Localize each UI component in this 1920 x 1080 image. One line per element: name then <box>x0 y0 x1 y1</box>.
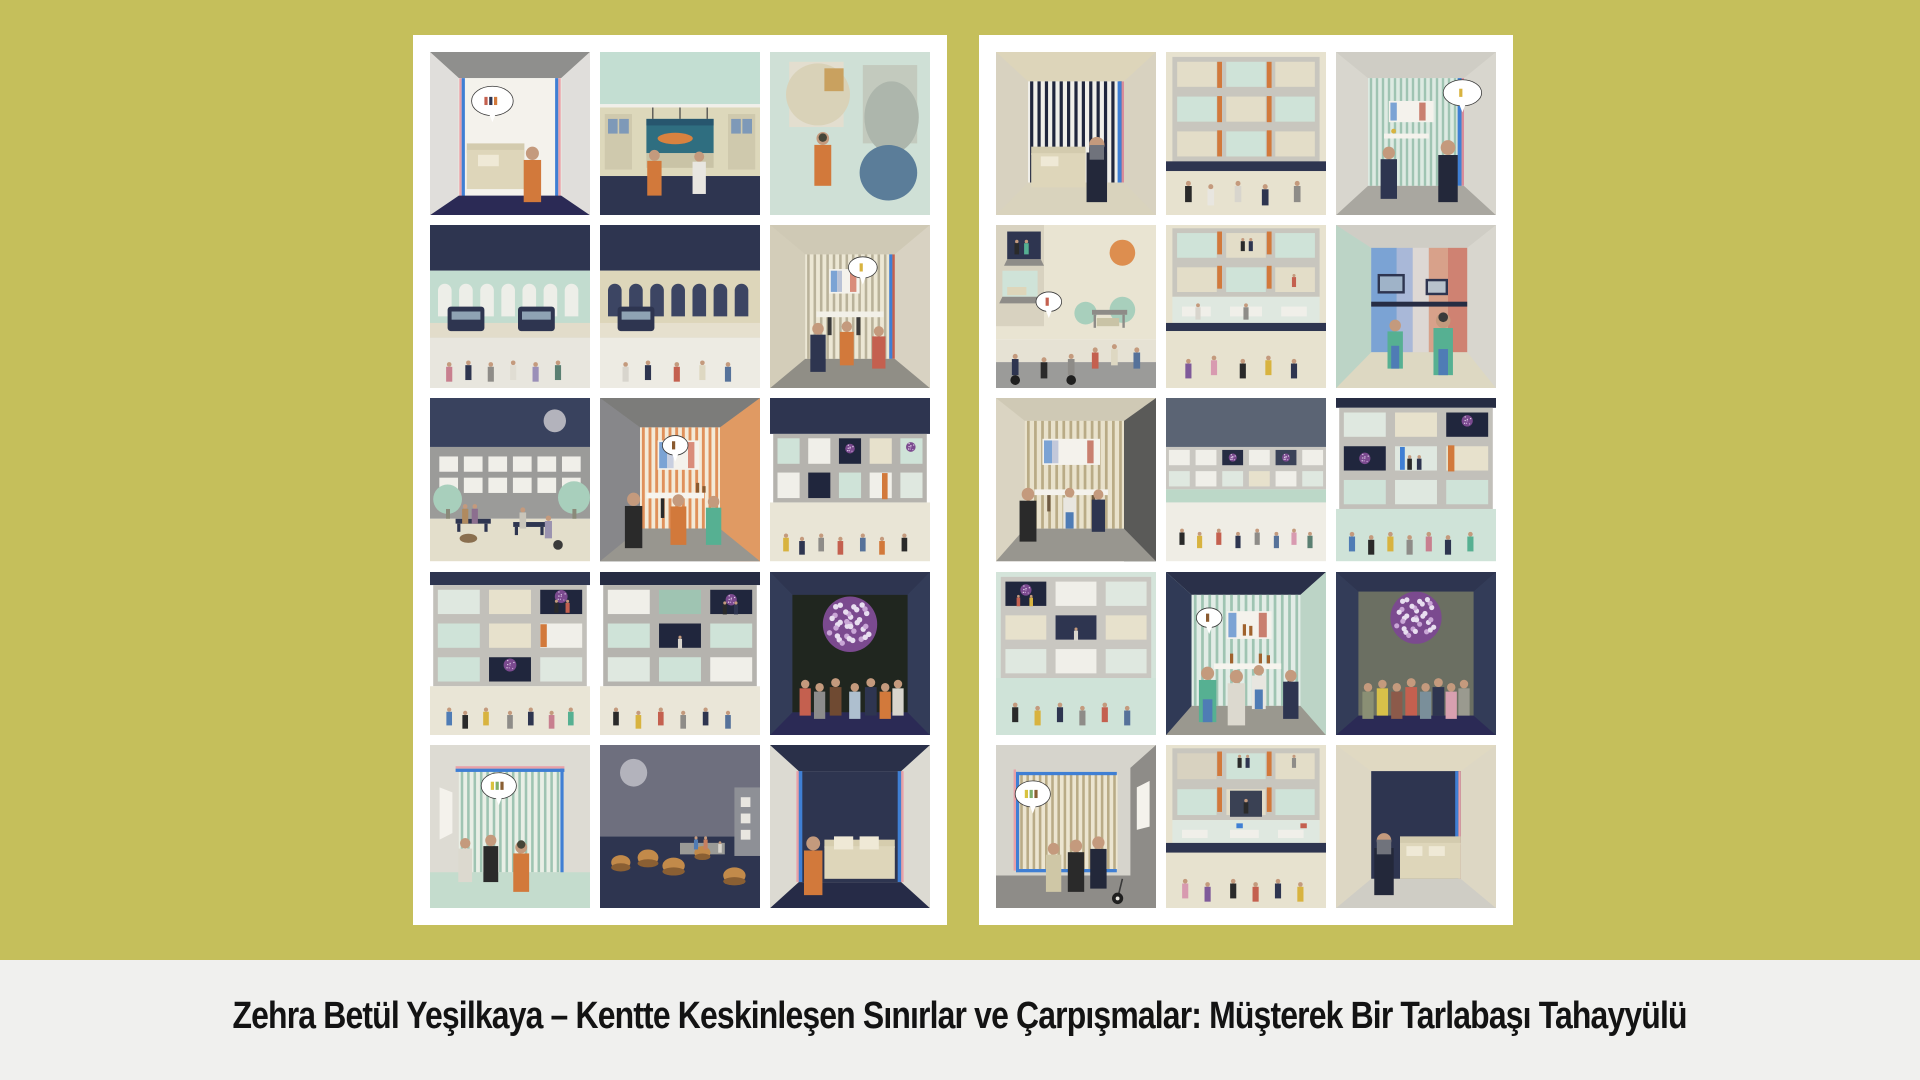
tile-office-stripes-meeting <box>996 398 1156 561</box>
poster-right[interactable] <box>979 35 1513 925</box>
tile-mint-room-two-women <box>1336 52 1496 215</box>
tile-street-modules-disco <box>1166 398 1326 561</box>
tile-kitchen-orange-stripes <box>600 398 760 561</box>
tile-cube-grid-teal <box>600 572 760 735</box>
tile-street-corner-sun <box>996 225 1156 388</box>
page-background: Zehra Betül Yeşilkaya – Kentte Keskinleş… <box>0 0 1920 1080</box>
tile-bedroom-navy-dark-figure <box>1336 745 1496 908</box>
tile-disco-room-green <box>1336 572 1496 735</box>
tile-abstract-collage-figure <box>770 52 930 215</box>
poster-left[interactable] <box>413 35 947 925</box>
tile-modular-street-crowd <box>770 398 930 561</box>
tile-cube-grid-disco-topleft <box>996 572 1156 735</box>
tile-night-street-moon <box>430 398 590 561</box>
tile-harbor-night-boats <box>600 745 760 908</box>
tile-bar-room-bottles <box>1166 572 1326 735</box>
caption-text: Zehra Betül Yeşilkaya – Kentte Keskinleş… <box>233 995 1687 1038</box>
tile-dining-room-stripes <box>770 225 930 388</box>
tile-metro-car <box>600 52 760 215</box>
tile-cube-shelf-figures <box>1166 52 1326 215</box>
tile-street-arcade-mint <box>430 225 590 388</box>
tile-gradient-screen-room <box>1336 225 1496 388</box>
tile-gallery-stripes-speech <box>430 745 590 908</box>
tile-cube-facade-shops <box>1166 225 1326 388</box>
tile-bedroom-navy-orange-figure <box>770 745 930 908</box>
caption-bar: Zehra Betül Yeşilkaya – Kentte Keskinleş… <box>0 960 1920 1080</box>
tile-cube-facade-disco-orange <box>1336 398 1496 561</box>
tile-bedroom-speech-bubble <box>430 52 590 215</box>
tile-gallery-stripes-segway <box>996 745 1156 908</box>
tile-cube-facade-shops-2 <box>1166 745 1326 908</box>
tile-disco-party-room <box>770 572 930 735</box>
tile-bedroom-bw-stripes <box>996 52 1156 215</box>
tile-street-arcade-beige <box>600 225 760 388</box>
tile-cube-grid-disco-1 <box>430 572 590 735</box>
